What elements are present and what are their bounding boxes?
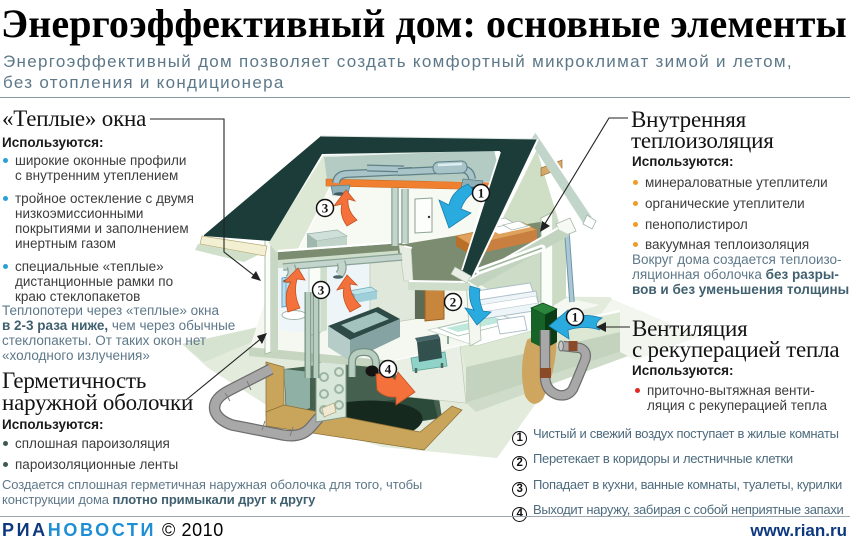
- svg-text:3: 3: [322, 201, 329, 216]
- svg-text:3: 3: [318, 283, 325, 298]
- svg-text:4: 4: [385, 362, 392, 377]
- svg-text:1: 1: [572, 310, 579, 325]
- svg-text:2: 2: [450, 295, 457, 310]
- svg-text:1: 1: [478, 186, 485, 201]
